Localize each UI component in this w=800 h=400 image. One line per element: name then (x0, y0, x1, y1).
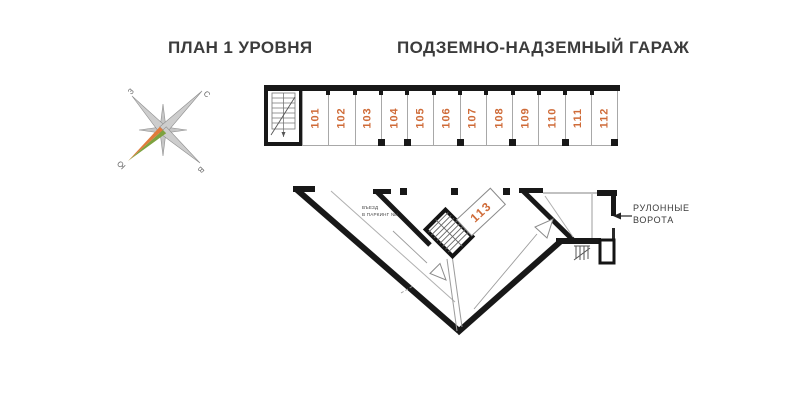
pillar (451, 188, 458, 195)
parking-stall-102[interactable]: 102 (329, 91, 355, 146)
stall-number: 112 (598, 108, 610, 129)
compass-label-west: З (126, 87, 136, 97)
wall-tick (353, 91, 357, 95)
wall-tick (511, 91, 515, 95)
roll-gates-label-line1: РУЛОННЫЕ (633, 202, 690, 214)
row-pillar (457, 139, 464, 146)
stall-number: 101 (310, 107, 322, 128)
ramp-label-line1: ВЪЕЗД (362, 205, 379, 210)
parking-stall-103[interactable]: 103 (356, 91, 382, 146)
wall-tick (432, 91, 436, 95)
lane-dash (401, 286, 413, 293)
inner-wall-right (522, 190, 574, 241)
staircase-icon (268, 91, 299, 142)
gate-room-lane-line (545, 196, 573, 237)
wall-tick (563, 91, 567, 95)
row-pillar (562, 139, 569, 146)
v-wall-left (296, 189, 459, 331)
shaft-box (600, 240, 614, 263)
inner-wall-left (376, 191, 430, 245)
compass-needle-orange (128, 127, 163, 161)
wall-tick (590, 91, 594, 95)
compass-needle-green (128, 130, 166, 161)
entry-arrow-head (430, 264, 446, 281)
parking-stalls: 101102103104105106107108109110111112 (302, 91, 618, 146)
compass-label-north: С (202, 89, 211, 100)
floor-plan-page: ПЛАН 1 УРОВНЯ ПОДЗЕМНО-НАДЗЕМНЫЙ ГАРАЖ З… (0, 0, 800, 400)
wall-tick (458, 91, 462, 95)
parking-stall-104[interactable]: 104 (382, 91, 408, 146)
parking-stall-107[interactable]: 107 (461, 91, 487, 146)
stall-number: 109 (520, 107, 532, 128)
stall-number: 103 (362, 107, 374, 128)
parking-stall-112[interactable]: 112 (592, 91, 618, 146)
compass-label-east: В (196, 165, 206, 175)
wall-tick (379, 91, 383, 95)
row-pillar (509, 139, 516, 146)
compass-spike-se (160, 127, 200, 163)
staircase-left (264, 91, 302, 146)
row-pillar (378, 139, 385, 146)
stall-number: 108 (493, 107, 505, 128)
row-pillar (611, 139, 618, 146)
roll-gates-label-line2: ВОРОТА (633, 214, 690, 226)
parking-stall-111[interactable]: 111 (566, 91, 592, 146)
gates-arrow-icon (613, 213, 621, 220)
gate-room-top-wall (597, 190, 617, 196)
parking-stall-105[interactable]: 105 (408, 91, 434, 146)
stall-number: 107 (467, 107, 479, 128)
pillar (400, 188, 407, 195)
unit-113[interactable]: 113 (457, 188, 506, 235)
page-title-garage: ПОДЗЕМНО-НАДЗЕМНЫЙ ГАРАЖ (397, 38, 689, 58)
stall-number: 105 (415, 107, 427, 128)
roll-gates-label: РУЛОННЫЕ ВОРОТА (633, 202, 690, 226)
parking-stall-106[interactable]: 106 (434, 91, 460, 146)
compass-star (128, 91, 202, 163)
parking-stall-108[interactable]: 108 (487, 91, 513, 146)
parking-stall-101[interactable]: 101 (302, 91, 329, 146)
inner-right-stub-wall (519, 188, 543, 193)
parking-stall-110[interactable]: 110 (539, 91, 565, 146)
stall-number: 106 (441, 107, 453, 128)
wall-tick (537, 91, 541, 95)
exit-arrow-shaft (474, 234, 537, 309)
wall-tick (326, 91, 330, 95)
row-pillar (404, 139, 411, 146)
wall-tick (484, 91, 488, 95)
stall-number: 104 (388, 107, 400, 128)
compass-rose: З С Ю В (115, 82, 211, 178)
lane-line-left (331, 191, 455, 302)
left-arm-stub-wall (293, 186, 315, 192)
exit-arrow-head (535, 219, 553, 238)
mini-stairs (574, 246, 590, 260)
ramp-edge (447, 259, 457, 331)
v-wall-right (457, 241, 561, 333)
gate-room-bottom-wall (556, 238, 601, 244)
garage-floor-plan: 113 ВЪЕЗД В ПАРКИНГ №1 (0, 0, 800, 400)
gate-room-right-wall-upper (611, 196, 616, 216)
ramp-label-line2: В ПАРКИНГ №1 (362, 212, 399, 217)
compass-label-south: Ю (115, 159, 127, 171)
stall-number: 102 (336, 107, 348, 128)
ramp-edge (452, 255, 462, 327)
stall-number: 111 (572, 108, 584, 128)
inner-left-stub-wall (373, 189, 391, 194)
stall-number: 110 (546, 108, 558, 129)
page-title-level: ПЛАН 1 УРОВНЯ (168, 38, 313, 58)
gate-room-right-wall-lower (612, 228, 615, 240)
wall-tick (405, 91, 409, 95)
pillar (503, 188, 510, 195)
parking-stall-109[interactable]: 109 (513, 91, 539, 146)
entry-arrow-shaft (393, 231, 427, 263)
